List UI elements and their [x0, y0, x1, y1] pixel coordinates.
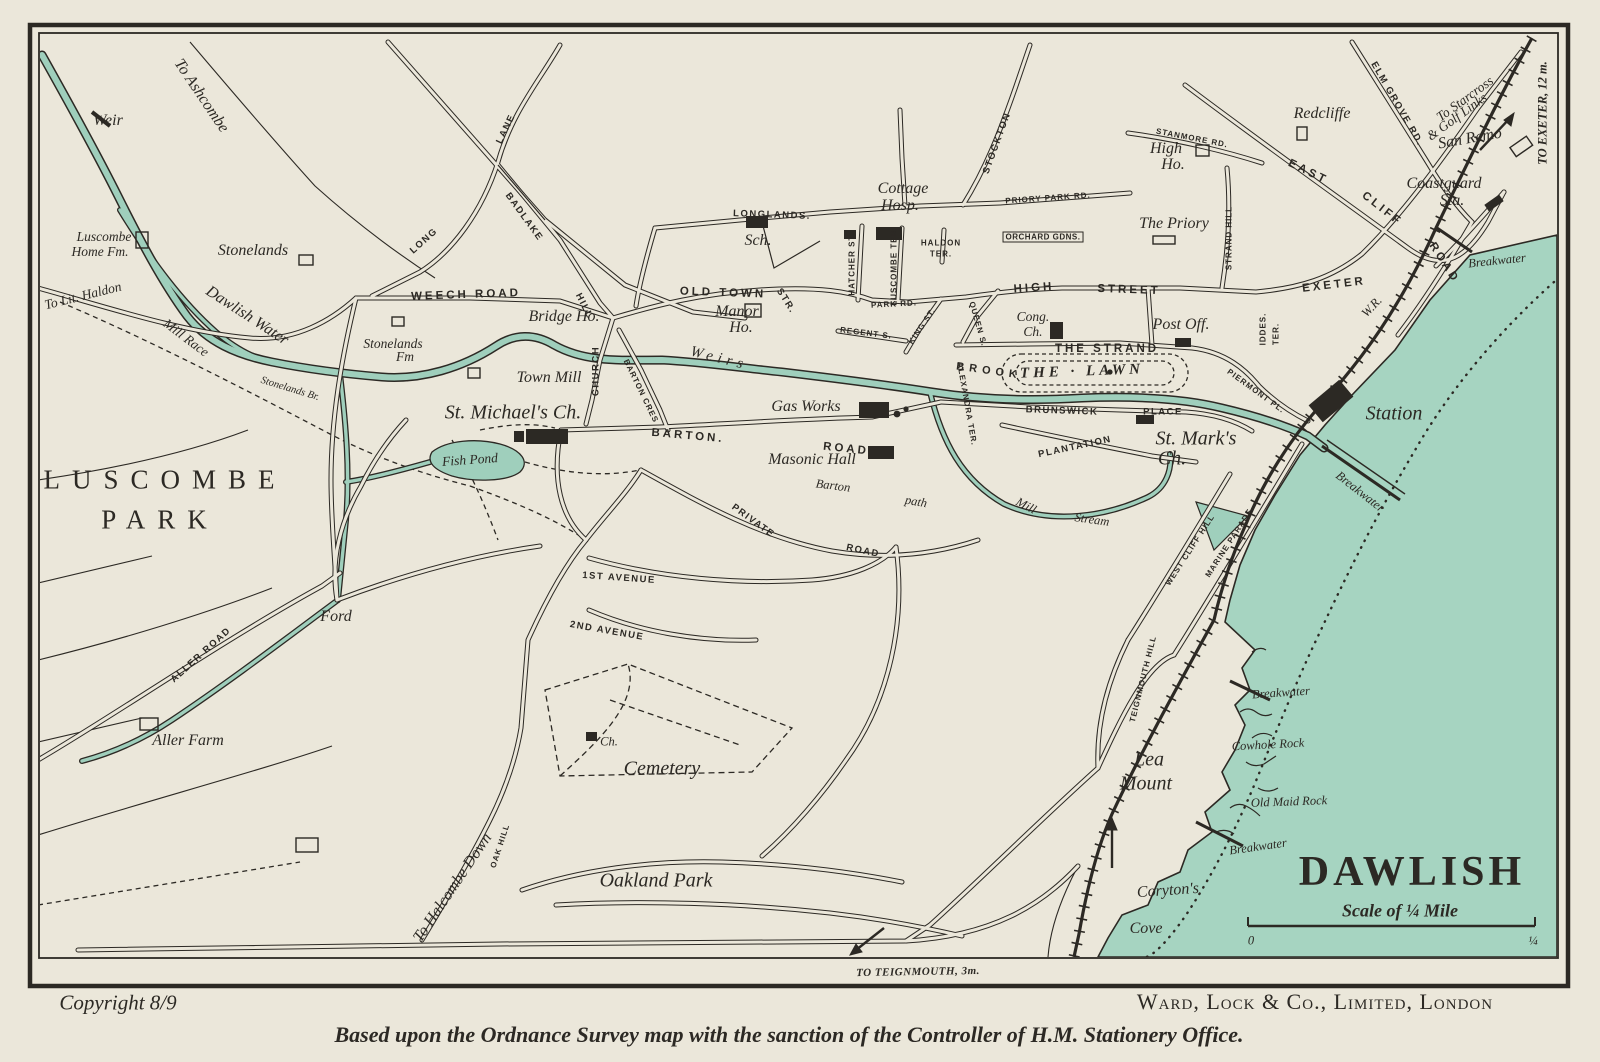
scale-end-label: ¼ [1528, 934, 1537, 949]
scale-caption: Scale of ¼ Mile [1342, 901, 1458, 922]
publisher-credit: Ward, Lock & Co., Limited, London [1137, 989, 1493, 1015]
lawn-dot [1107, 369, 1112, 374]
attribution-note: Based upon the Ordnance Survey map with … [335, 1022, 1244, 1048]
copyright-note: Copyright 8/9 [59, 991, 176, 1016]
map-title: DAWLISH [1299, 848, 1525, 896]
scale-start-label: 0 [1248, 934, 1254, 949]
map-page: To AshcombeWeirLuscombeHome Fm.Stoneland… [0, 0, 1600, 1062]
